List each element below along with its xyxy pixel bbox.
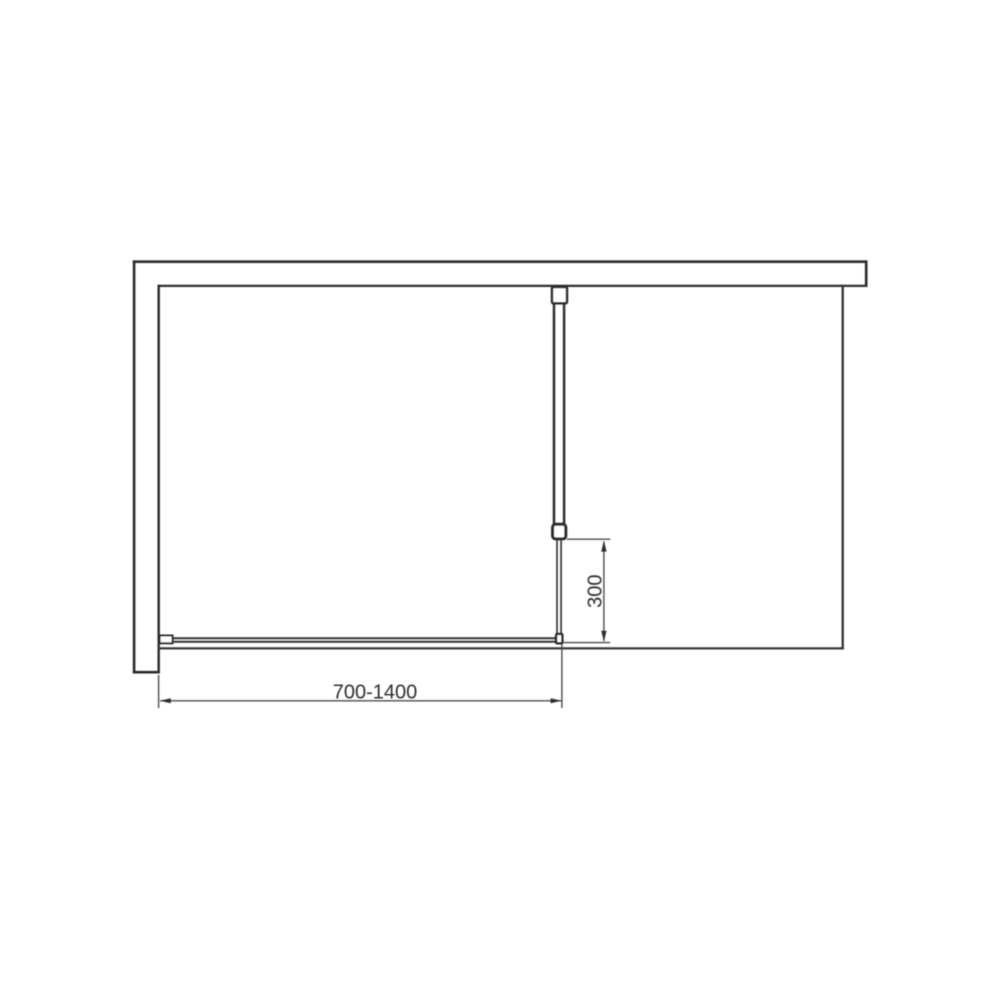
svg-text:300: 300 — [585, 575, 607, 608]
svg-text:700-1400: 700-1400 — [333, 681, 418, 703]
